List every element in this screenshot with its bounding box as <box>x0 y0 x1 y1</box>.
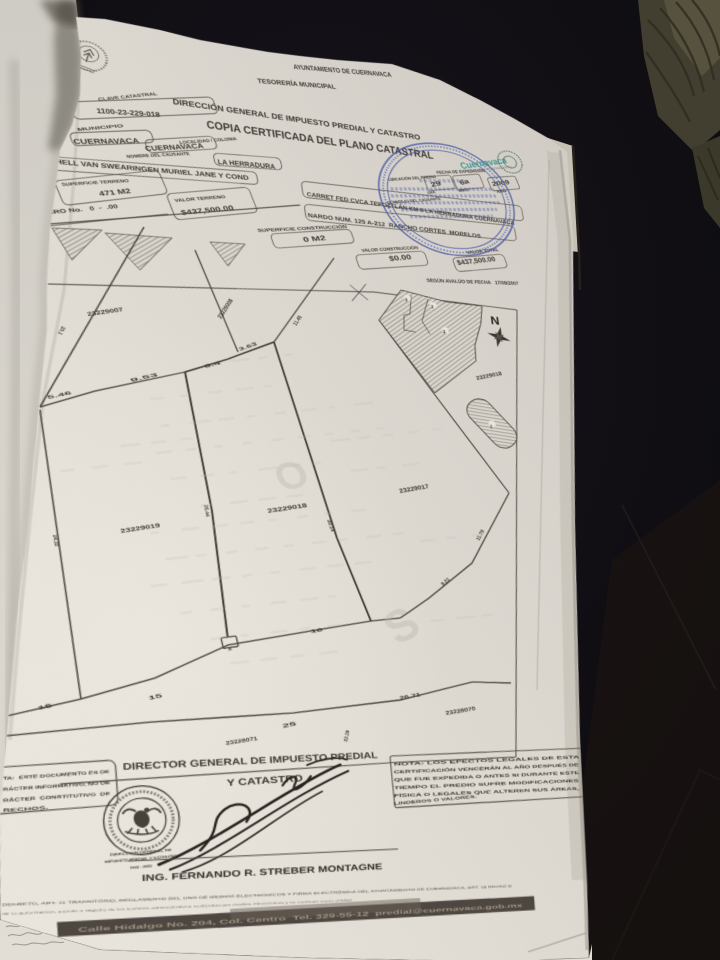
svg-text:CUERNAVACA: CUERNAVACA <box>72 137 141 146</box>
svg-text:1: 1 <box>490 425 493 431</box>
